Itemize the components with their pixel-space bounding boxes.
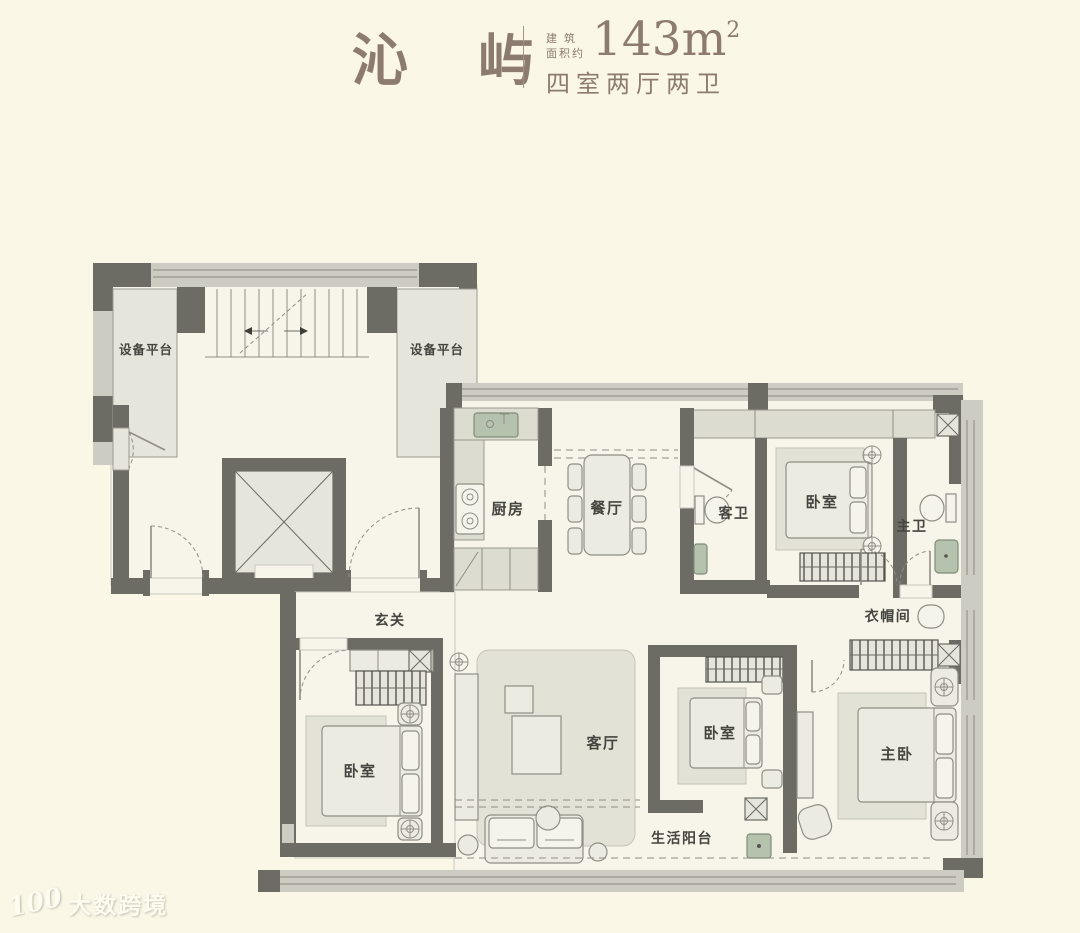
sofa	[485, 815, 583, 863]
watermark-brand: 大数跨境	[68, 886, 168, 920]
guest-basin	[694, 544, 707, 574]
duct-top-right	[937, 414, 959, 436]
room-label-master-bedroom: 主卧	[880, 745, 913, 763]
room-label-equipment-platform-right: 设备平台	[410, 342, 464, 357]
duct-balcony	[745, 798, 767, 820]
room-label-equipment-platform-left: 设备平台	[119, 342, 173, 357]
cloakroom-basin	[918, 605, 944, 628]
room-label-cloakroom: 衣帽间	[865, 608, 912, 624]
master-dresser	[797, 712, 813, 798]
room-balcony: 生活阳台	[651, 830, 713, 846]
watermark: 100 大数跨境	[8, 886, 168, 920]
room-label-bedroom-left: 卧室	[343, 762, 376, 780]
room-label-balcony: 生活阳台	[651, 830, 713, 846]
room-label-master-bathroom: 主卫	[897, 518, 928, 534]
room-foyer: 玄关	[375, 612, 406, 628]
watermark-logo: 100	[5, 883, 64, 924]
room-label-bedroom-top-right: 卧室	[805, 493, 838, 511]
room-label-bedroom-middle: 卧室	[703, 724, 736, 742]
coffee-table	[512, 716, 561, 774]
tv-cabinet	[455, 674, 478, 820]
room-label-foyer: 玄关	[375, 612, 406, 628]
kitchen-sink	[474, 413, 518, 437]
room-label-dining: 餐厅	[590, 499, 623, 517]
kitchen-stove	[456, 484, 484, 534]
room-label-living: 客厅	[585, 734, 619, 752]
floor-plan: 设备平台 设备平台	[0, 0, 1080, 933]
room-label-guest-bathroom: 客卫	[718, 505, 750, 521]
elevator	[222, 458, 346, 586]
room-label-kitchen: 厨房	[491, 500, 524, 518]
